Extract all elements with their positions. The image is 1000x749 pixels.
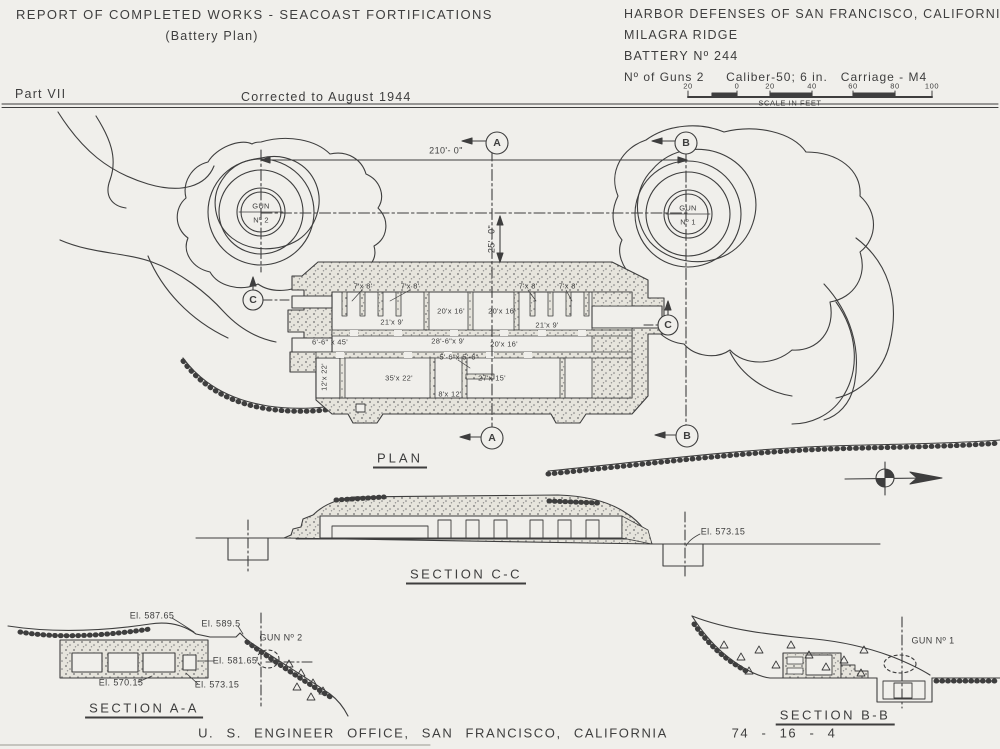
gun2-label-line1: GUN (252, 202, 270, 210)
gun2-label-line2: Nº 2 (253, 216, 269, 224)
room-dimension-label: 7'x 8' (559, 282, 578, 290)
room-dimension-label: 21'x 9' (380, 318, 403, 326)
room-dimension-label: 8'x 12' (438, 390, 461, 398)
section-marker-b-top: B (682, 138, 690, 149)
plan-title: PLAN (373, 452, 427, 469)
room-dimension-label: 12'x 22' (320, 363, 328, 391)
room-dimension-label: 7'x 8' (354, 282, 373, 290)
section-marker-c-right: C (664, 320, 672, 331)
aa-el-573-label: El. 573.15 (195, 681, 240, 690)
gun1-label-line1: GUN (679, 204, 697, 212)
room-dimension-label: 7'x 8' (519, 282, 538, 290)
room-dimension-label: 35'x 22' (385, 374, 413, 382)
scale-tick-label: 100 (925, 82, 939, 90)
section-bb-title: SECTION B-B (776, 709, 895, 726)
header-guns: Nº of Guns 2 Caliber-50; 6 in. Carriage … (624, 71, 927, 83)
section-marker-c-left: C (249, 295, 257, 306)
room-dimension-label: 20'x 16' (490, 340, 518, 348)
header-site: MILAGRA RIDGE (624, 29, 738, 42)
dim-gun-offset: 25'- 0" (488, 225, 497, 253)
room-dimension-label: 27'x 15' (478, 374, 506, 382)
aa-el-581-label: El. 581.65 (213, 657, 258, 666)
room-dimension-label: 20'x 16' (437, 307, 465, 315)
room-dimension-label: 7'x 8' (401, 282, 420, 290)
gun1-emplacement (613, 126, 873, 424)
room-dimension-label: 28'-6"x 9' (431, 337, 465, 345)
footer-drawing-number: 74 - 16 - 4 (732, 727, 837, 740)
cc-elevation-label: El. 573.15 (701, 528, 746, 537)
header-agency: HARBOR DEFENSES OF SAN FRANCISCO, CALIFO… (624, 8, 1000, 21)
room-dimension-label: 21'x 9' (535, 321, 558, 329)
room-dimension-label: 5'-6"x 5'-6" (439, 353, 478, 361)
header-battery: BATTERY Nº 244 (624, 50, 738, 63)
scale-tick-label: 20 (683, 82, 693, 90)
report-title: REPORT OF COMPLETED WORKS - SEACOAST FOR… (16, 8, 493, 21)
scale-tick-label: 60 (848, 82, 858, 90)
report-subtitle: (Battery Plan) (165, 30, 258, 43)
section-bb-drawing (692, 616, 1000, 708)
aa-el-570-label: El. 570.15 (99, 679, 144, 688)
section-marker-a-top: A (493, 138, 501, 149)
aa-el-587-label: El. 587.65 (130, 612, 175, 621)
section-aa-title: SECTION A-A (85, 702, 203, 719)
north-arrow-icon (845, 462, 942, 495)
scale-tick-label: 0 (735, 82, 740, 90)
section-marker-b-bottom: B (683, 431, 691, 442)
room-dimension-label: 20'x 16' (488, 307, 516, 315)
scale-tick-label: 40 (807, 82, 817, 90)
dim-gun-spacing: 210'- 0" (429, 147, 463, 156)
scale-caption: SCALE IN FEET (758, 99, 821, 107)
scale-bar (688, 91, 932, 97)
corrected-label: Corrected to August 1944 (241, 91, 412, 104)
section-cc-title: SECTION C-C (406, 568, 526, 585)
section-cc-drawing (196, 495, 880, 576)
footer-office: U. S. ENGINEER OFFICE, SAN FRANCISCO, CA… (198, 727, 668, 740)
aa-el-589-label: El. 589.5 (201, 620, 240, 629)
scale-tick-label: 80 (890, 82, 900, 90)
room-dimension-label: 6'-6" x 45' (312, 338, 348, 346)
section-marker-a-bottom: A (488, 433, 496, 444)
aa-gun-label: GUN Nº 2 (260, 634, 303, 643)
gun1-label-line2: Nº 1 (680, 218, 696, 226)
part-label: Part VII (15, 88, 66, 101)
scale-tick-label: 20 (765, 82, 775, 90)
bb-gun-label: GUN Nº 1 (912, 637, 955, 646)
drawing-sheet: REPORT OF COMPLETED WORKS - SEACOAST FOR… (0, 0, 1000, 749)
